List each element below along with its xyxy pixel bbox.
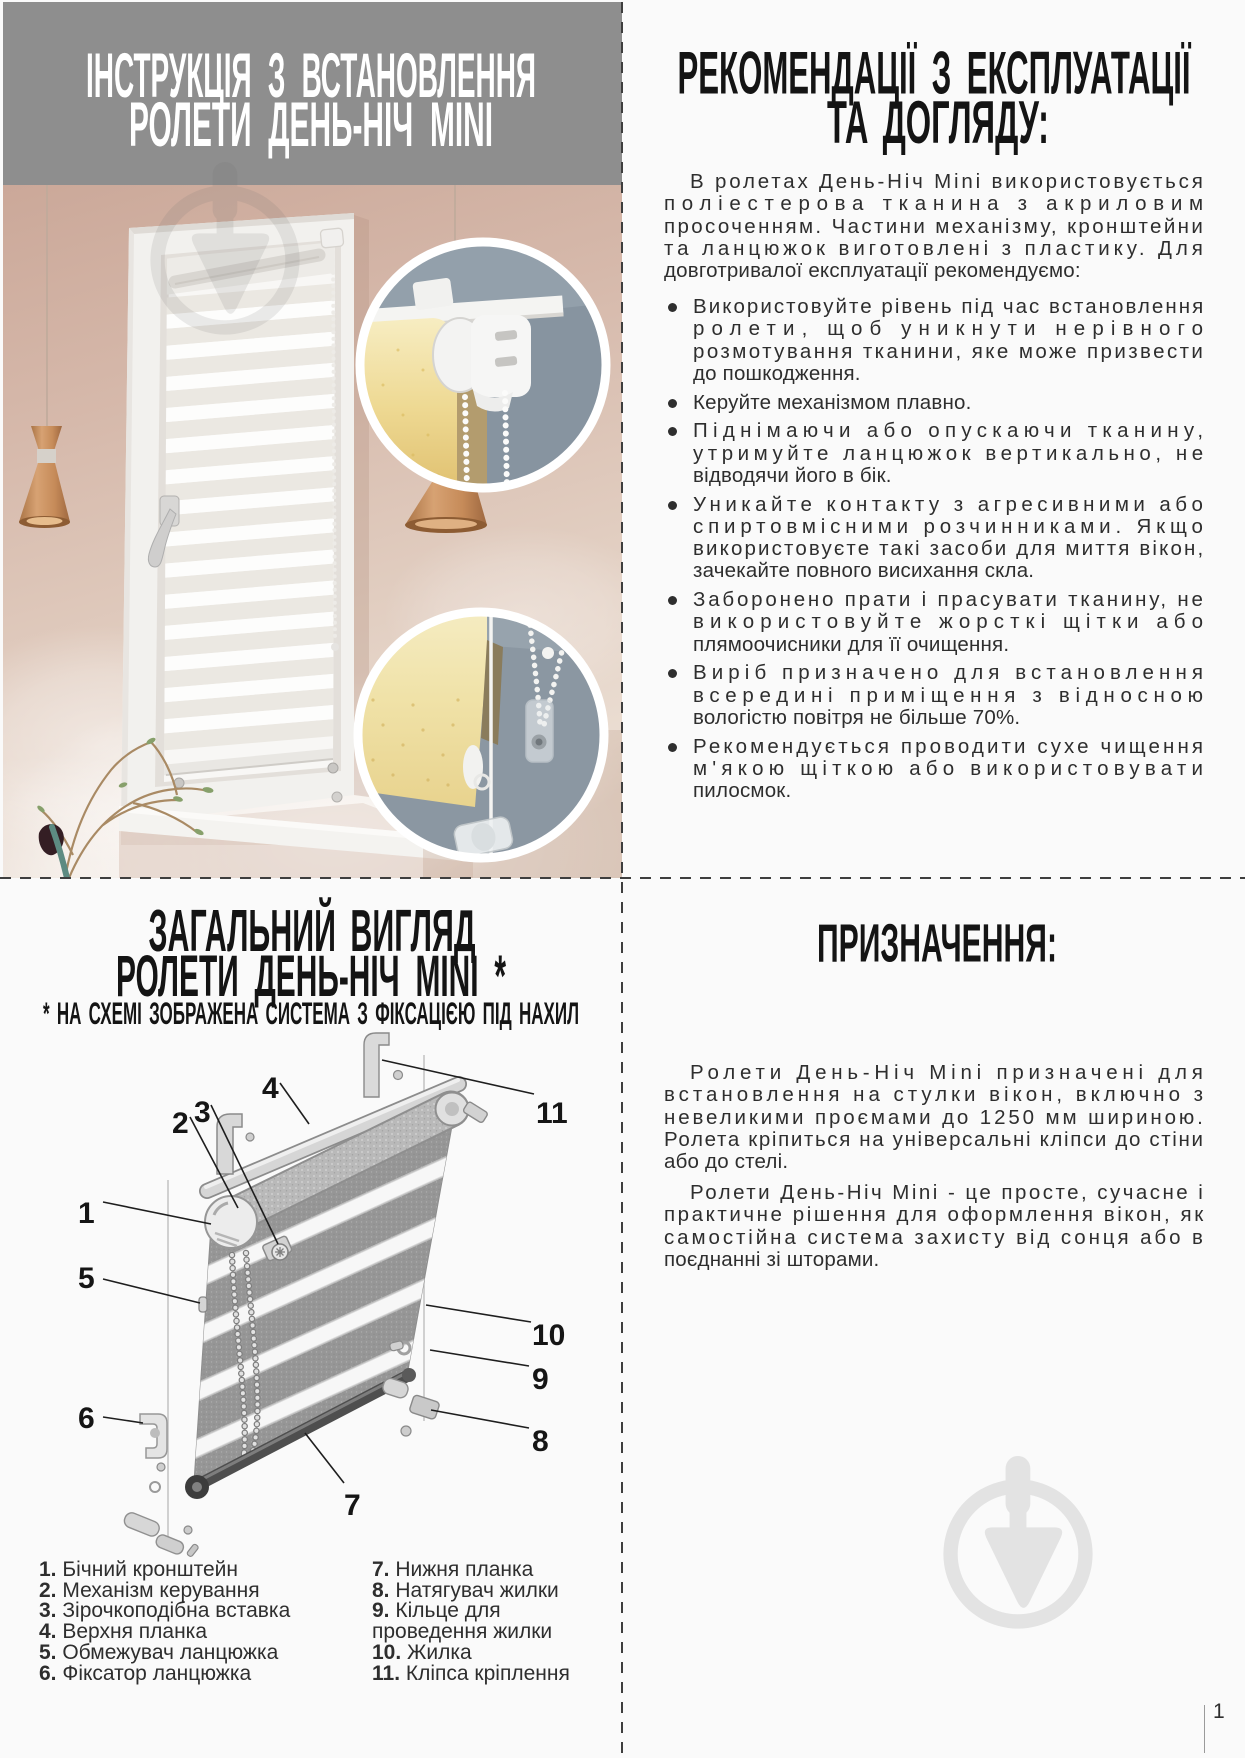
svg-text:2: 2 bbox=[172, 1107, 189, 1140]
svg-text:6: 6 bbox=[78, 1402, 95, 1435]
svg-text:ТА ДОГЛЯДУ:: ТА ДОГЛЯДУ: bbox=[827, 88, 1049, 156]
svg-text:8: 8 bbox=[532, 1425, 549, 1458]
svg-text:9: 9 bbox=[532, 1363, 549, 1396]
svg-text:11: 11 bbox=[536, 1097, 568, 1130]
svg-text:ПРИЗНАЧЕННЯ:: ПРИЗНАЧЕННЯ: bbox=[817, 913, 1057, 970]
svg-text:РОЛЕТИ ДЕНЬ-НІЧ MINI: РОЛЕТИ ДЕНЬ-НІЧ MINI bbox=[129, 89, 493, 159]
svg-text:4: 4 bbox=[262, 1072, 279, 1105]
svg-text:10: 10 bbox=[532, 1319, 565, 1352]
svg-text:1: 1 bbox=[78, 1197, 95, 1230]
svg-text:5: 5 bbox=[78, 1262, 95, 1295]
svg-text:* НА СХЕМІ ЗОБРАЖЕНА СИСТЕМА З: * НА СХЕМІ ЗОБРАЖЕНА СИСТЕМА З ФІКСАЦІЄЮ… bbox=[43, 995, 579, 1030]
svg-text:7: 7 bbox=[344, 1489, 361, 1522]
svg-text:3: 3 bbox=[194, 1096, 211, 1129]
